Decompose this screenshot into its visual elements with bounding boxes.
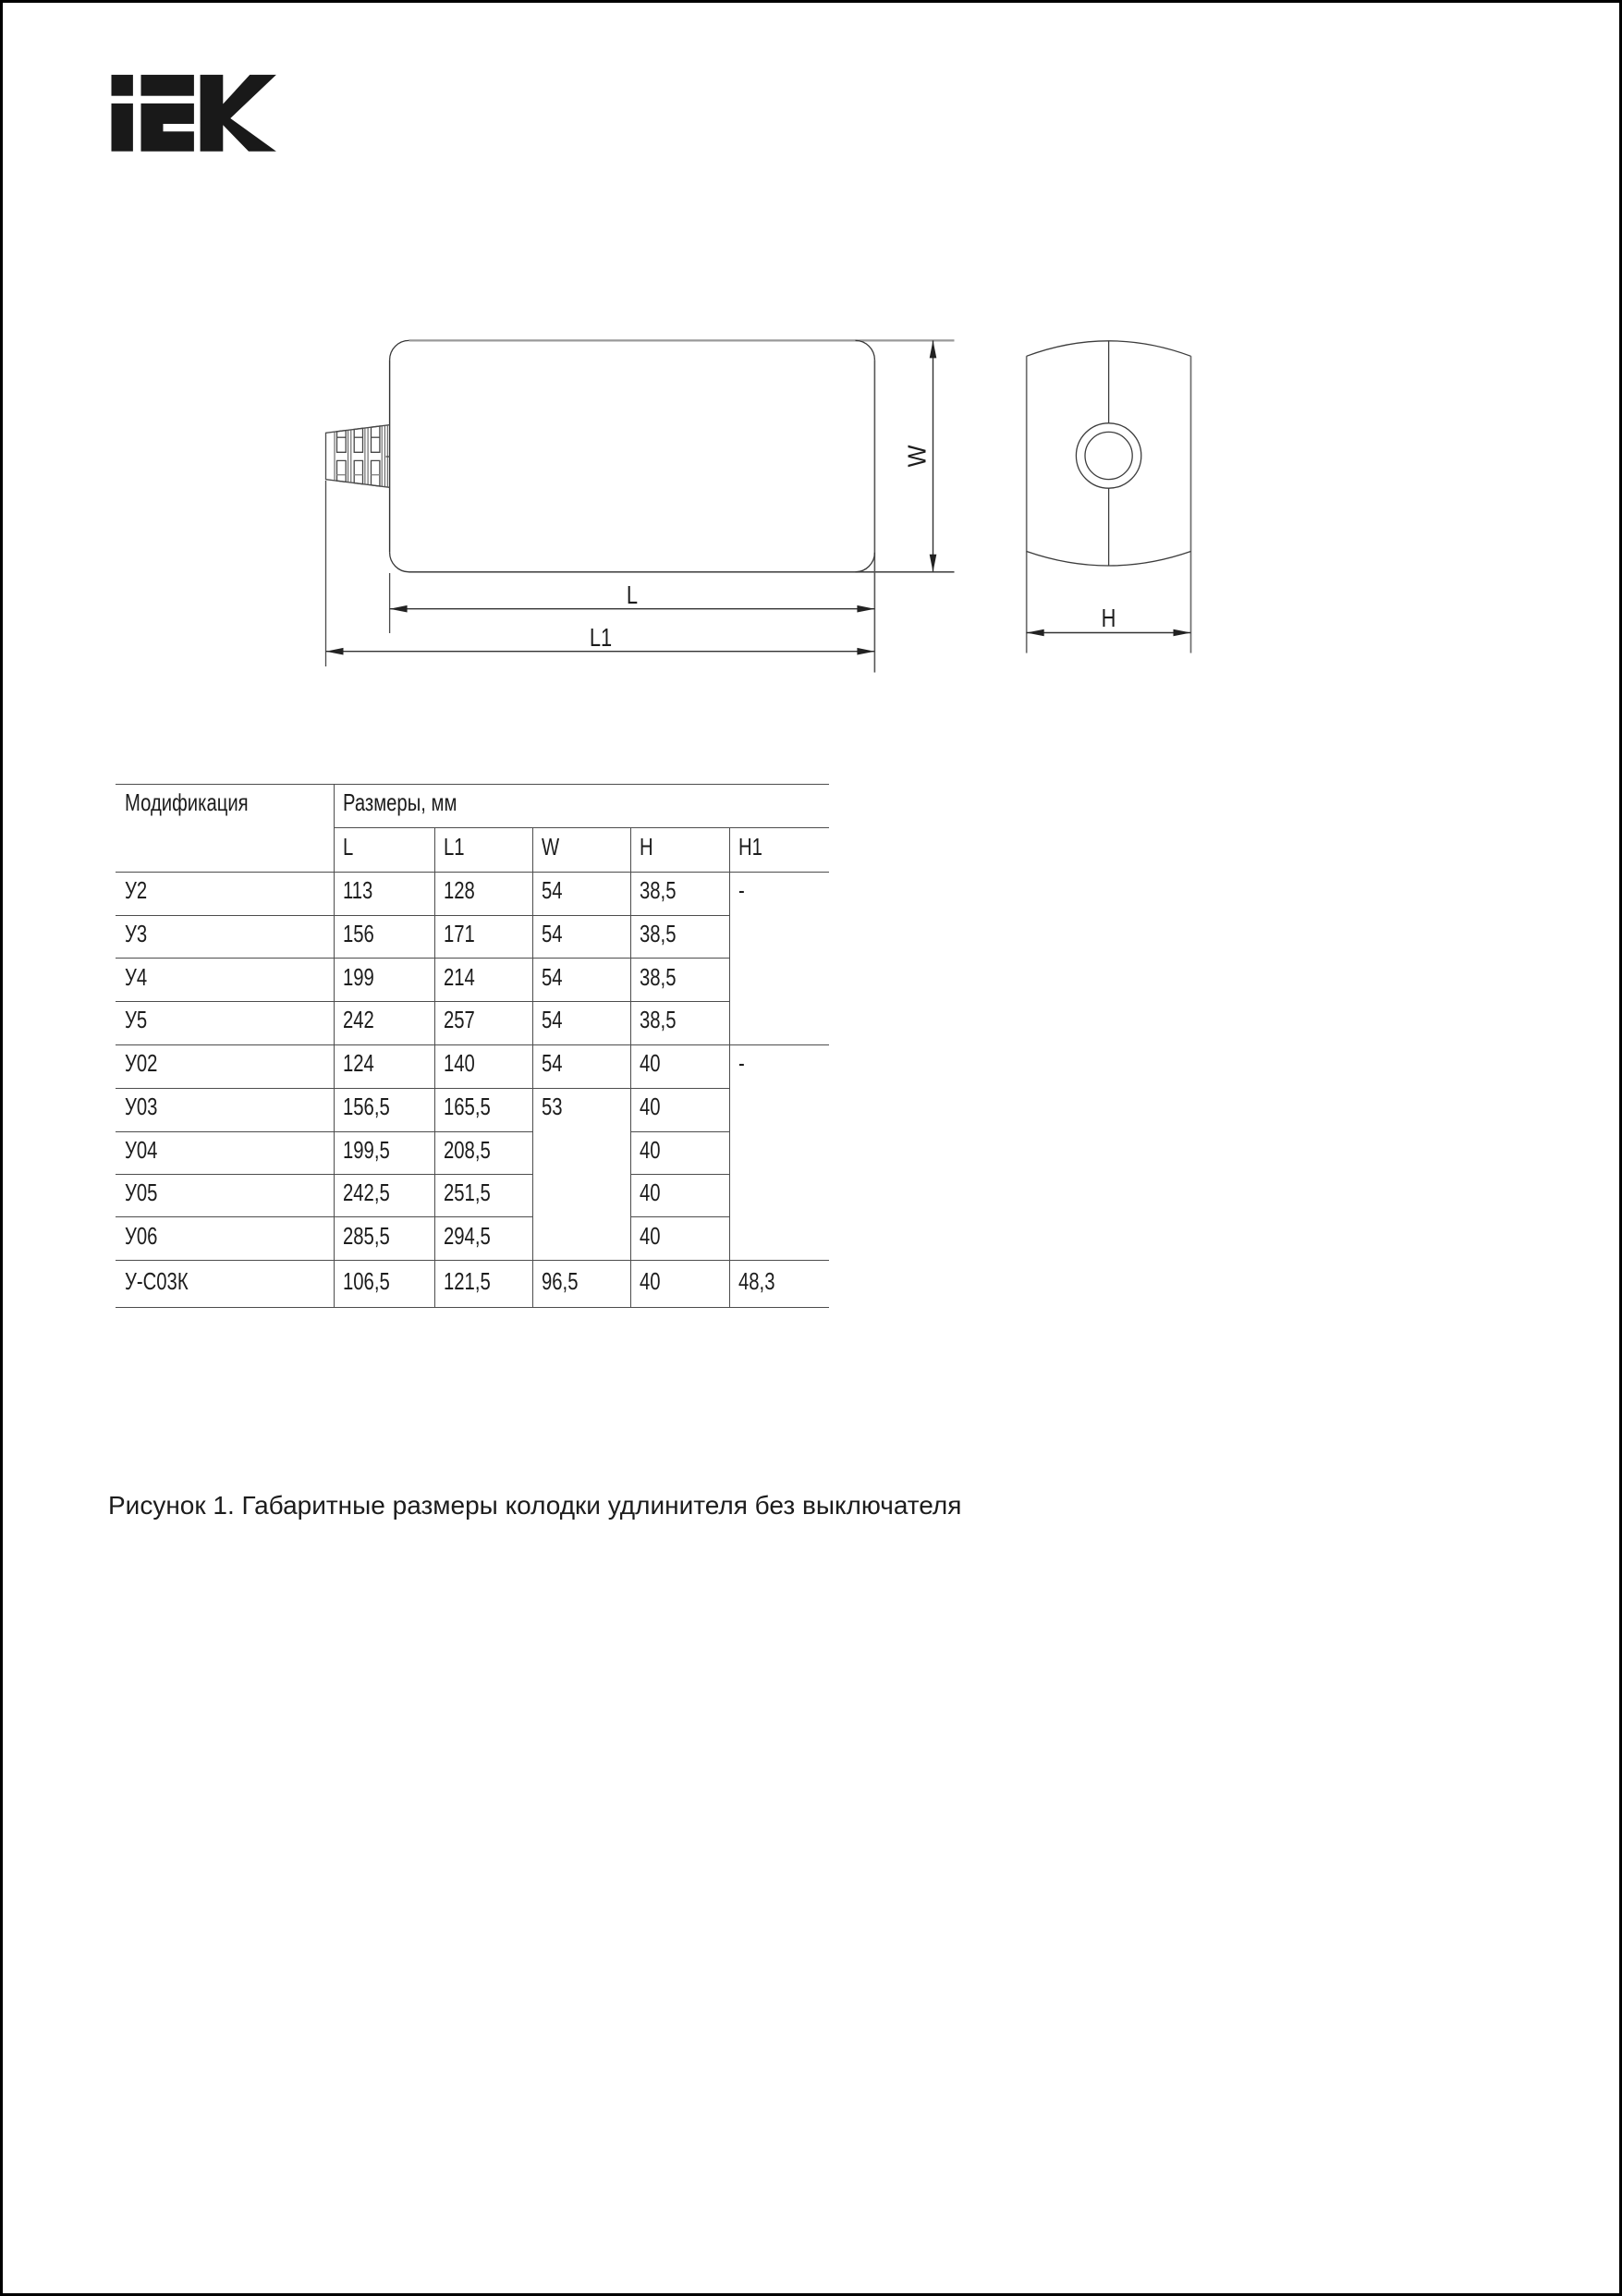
svg-text:W: W	[902, 445, 932, 468]
svg-text:L: L	[627, 580, 638, 609]
svg-text:H: H	[1102, 605, 1116, 633]
svg-text:L1: L1	[590, 623, 612, 652]
